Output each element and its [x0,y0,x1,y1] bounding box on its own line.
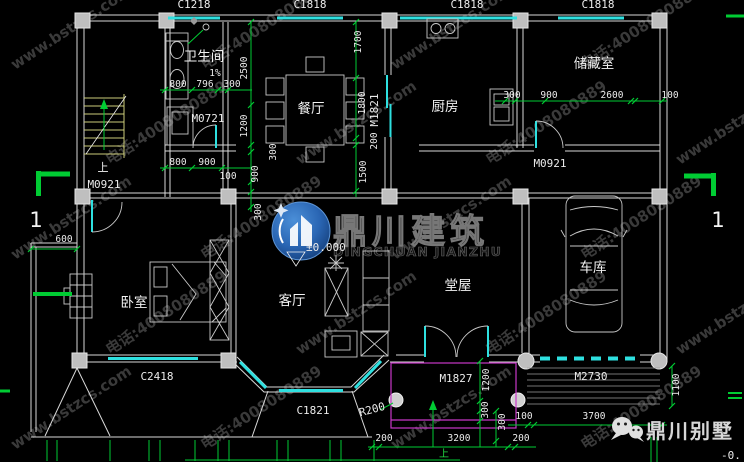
dim-2600: 2600 [601,90,624,101]
dim-200: 200 [375,433,392,444]
room-label-dining: 餐厅 [298,101,325,117]
brand-name: 鼎川别墅 [646,419,734,443]
dim-1200: 1200 [481,368,492,391]
dim-300: 300 [253,203,264,220]
dim-1100: 1100 [671,373,682,396]
wechat-icon [612,417,632,435]
dim-3700: 3700 [583,411,606,422]
dim-100: 100 [661,90,678,101]
axis-label-right: 1 [711,208,724,232]
door-label-m0921: M0921 [87,178,120,191]
window-label-c1821: C1821 [296,404,329,417]
dim-200: 200 [369,132,380,149]
floor-plan-canvas: www.bstzcs.com 电话:4008080889 www.bstzcs.… [0,0,744,462]
door-label-m0921: M0921 [533,157,566,170]
dim-3200: 3200 [448,433,471,444]
door-label-m1821: M1821 [368,93,381,126]
up-label-porch: 上 [439,448,449,460]
dim-900: 900 [198,157,215,168]
window-label-c1218: C1218 [177,0,210,11]
dim-100: 100 [219,171,236,182]
dim-300: 300 [497,413,508,430]
axis-label-left: 1 [29,208,42,232]
dim-1200: 1200 [239,114,250,137]
room-label-bedroom: 卧室 [121,294,148,311]
dim-1500: 1500 [358,160,369,183]
dim-200: 200 [512,433,529,444]
room-label-bathroom: 卫生间 [184,49,225,65]
window-label-c1818: C1818 [581,0,614,11]
dim-300: 300 [503,90,520,101]
dim-900: 900 [250,165,261,182]
dim-800: 800 [169,79,186,90]
dim-300: 300 [480,401,491,418]
dim-600: 600 [55,234,72,245]
dim-1700: 1700 [353,30,364,53]
dim-900: 900 [540,90,557,101]
room-label-hall: 堂屋 [445,278,472,294]
level-corner: -0. [721,449,741,462]
dim-300: 300 [223,79,240,90]
level-ground: ±0.000 [306,241,346,254]
door-label-m1827: M1827 [439,372,472,385]
logo-en-text: DINGCHUAN JIANZHU [333,244,502,259]
dim-300: 300 [268,143,279,160]
room-label-kitchen: 厨房 [432,99,459,115]
dim-2500: 2500 [239,56,250,79]
dim-796: 796 [196,79,213,90]
room-label-storage: 储藏室 [574,55,615,72]
door-label-m0721: M0721 [191,112,224,125]
window-label-c1818: C1818 [293,0,326,11]
window-label-c2418: C2418 [140,370,173,383]
porch-column [511,393,525,407]
dim-1800: 1800 [357,91,368,114]
window-label-c1818: C1818 [450,0,483,11]
up-label-stairs: 上 [98,161,109,174]
room-label-garage: 车库 [580,259,607,276]
dim-100: 100 [515,411,532,422]
room-label-living: 客厅 [279,292,306,309]
dim-800: 800 [169,157,186,168]
slope-label: 1% [209,68,221,79]
door-label-m2730: M2730 [574,370,607,383]
